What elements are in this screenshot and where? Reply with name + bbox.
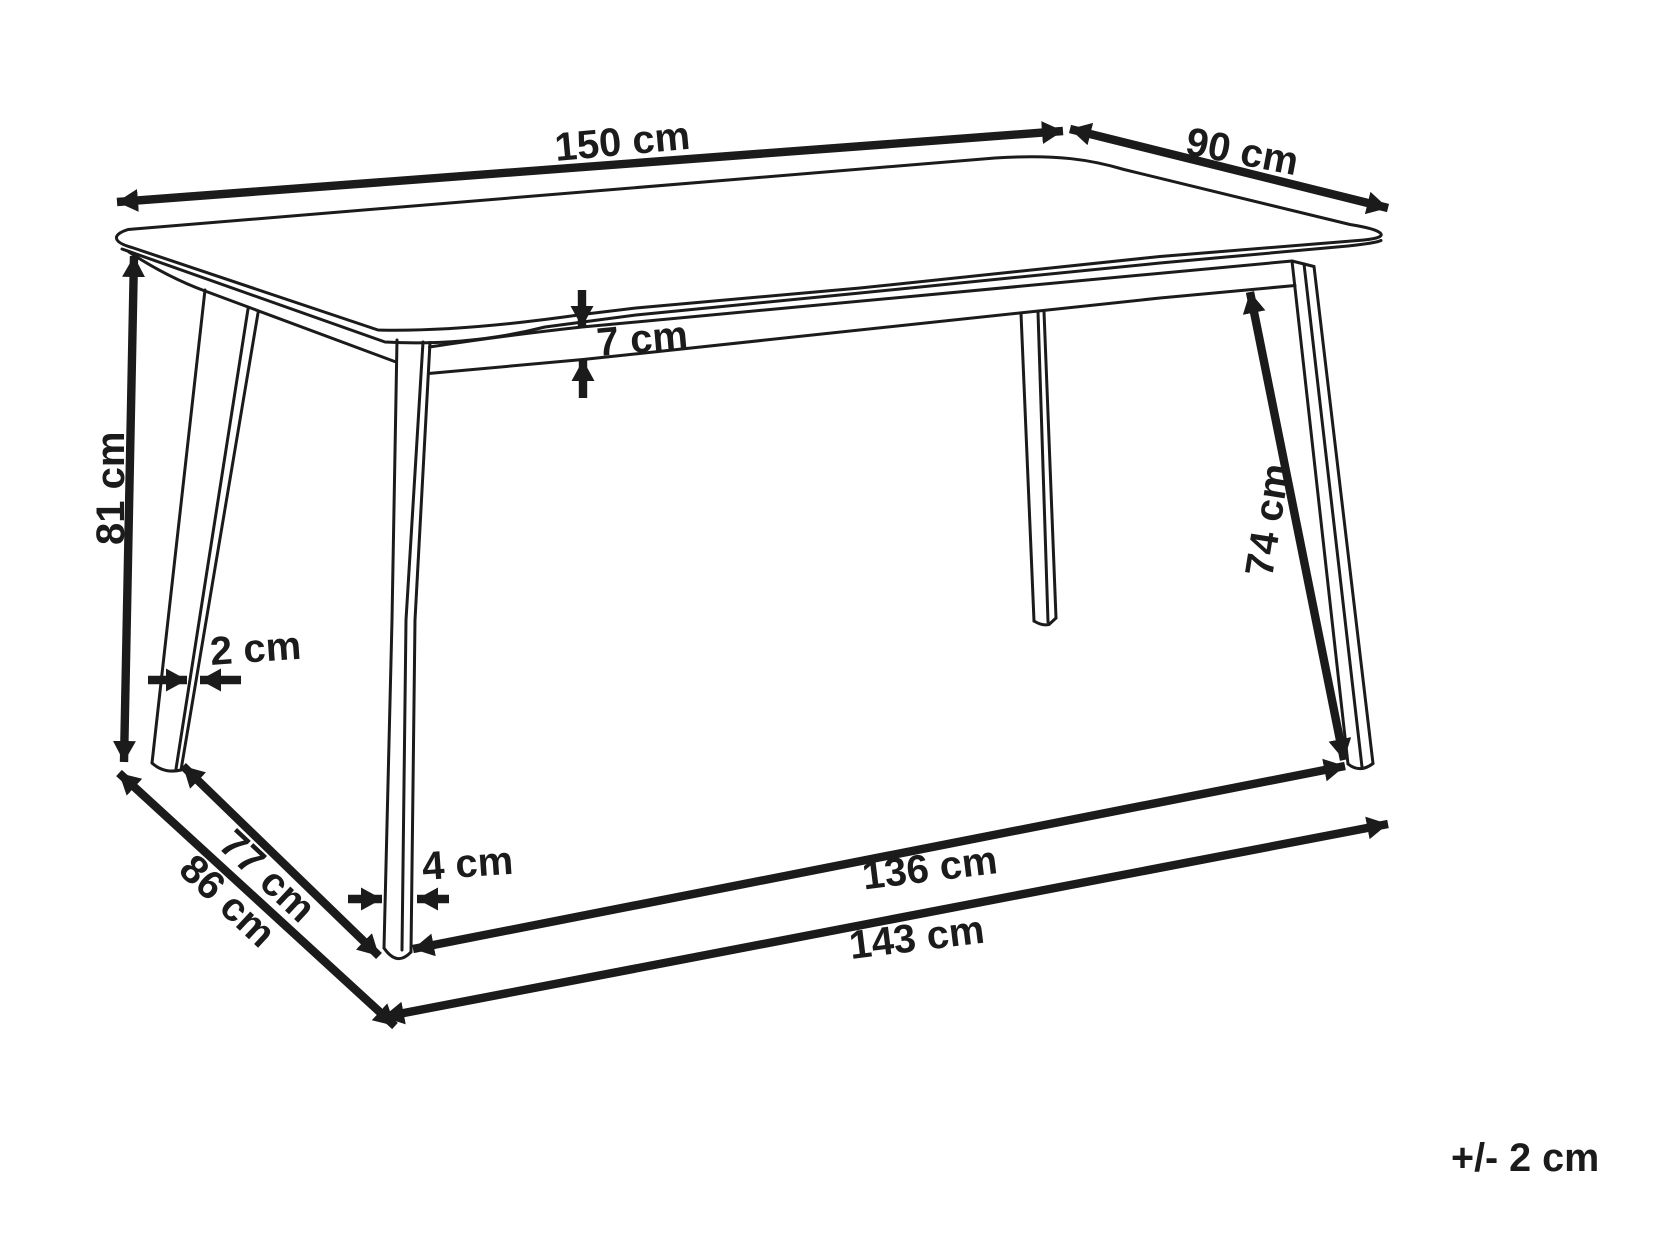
svg-text:4 cm: 4 cm (421, 839, 515, 889)
svg-text:81 cm: 81 cm (89, 432, 133, 545)
svg-text:2 cm: 2 cm (209, 624, 303, 674)
svg-text:7 cm: 7 cm (595, 313, 690, 365)
svg-text:+/- 2 cm: +/- 2 cm (1451, 1136, 1599, 1180)
